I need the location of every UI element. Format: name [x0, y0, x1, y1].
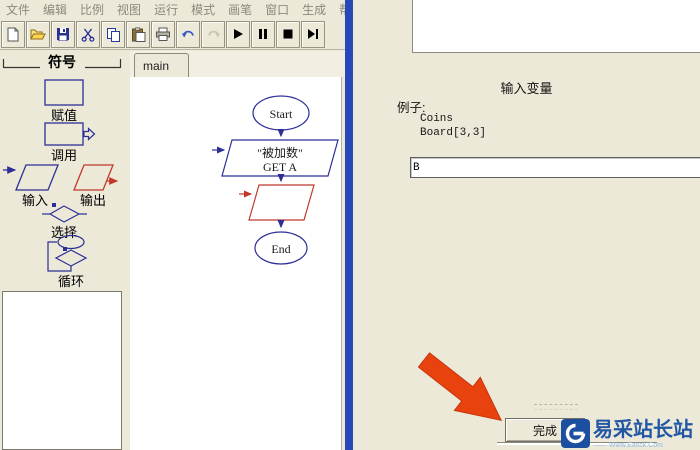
flow-input-line2: GET A [263, 160, 297, 174]
symbol-input[interactable]: 输入 [3, 165, 58, 208]
menu-mode[interactable]: 模式 [185, 0, 221, 19]
new-button[interactable] [1, 21, 25, 48]
dialog-example-board: Board[3,3] [420, 127, 486, 139]
open-button[interactable] [26, 21, 50, 48]
watch-list-panel[interactable] [2, 291, 122, 450]
copy-button[interactable] [101, 21, 125, 48]
undo-icon [181, 28, 196, 41]
symbol-assignment-label: 赋值 [51, 108, 77, 123]
symbol-selection[interactable]: 选择 [42, 203, 87, 240]
flowchart: Start "被加数" GET A End [130, 77, 342, 450]
dialog-example-coins: Coins [420, 113, 453, 125]
cut-button[interactable] [76, 21, 100, 48]
symbols-palette: 赋值 调用 输入 输出 选择 循环 [0, 75, 127, 291]
annotation-arrow-icon [410, 346, 525, 441]
watermark: 易采站长站 —— Www.Easck.Com [561, 419, 693, 449]
flow-node-new-io-selected[interactable] [239, 185, 314, 220]
flow-node-end[interactable]: End [255, 232, 307, 264]
menu-scale[interactable]: 比例 [74, 0, 110, 19]
redo-button[interactable] [201, 21, 225, 48]
watermark-subtext: —— Www.Easck.Com [593, 442, 693, 449]
menu-edit[interactable]: 编辑 [37, 0, 73, 19]
flow-start-label: Start [270, 107, 293, 121]
redo-icon-disabled [206, 28, 221, 41]
paste-clipboard-icon [131, 27, 146, 42]
symbols-panel-header: 符号 [0, 52, 127, 72]
watermark-text: 易采站长站 [593, 419, 693, 442]
symbol-loop-label: 循环 [58, 274, 84, 289]
pause-icon [258, 28, 268, 40]
symbol-call-label: 调用 [51, 148, 77, 163]
watermark-logo-icon [561, 419, 590, 448]
dashed-grip [534, 404, 578, 410]
dialog-upper-text-area [412, 0, 700, 53]
save-button[interactable] [51, 21, 75, 48]
flow-end-label: End [271, 242, 290, 256]
pause-button[interactable] [251, 21, 275, 48]
step-to-end-icon [307, 28, 319, 40]
symbol-input-label: 输入 [22, 193, 48, 208]
symbol-loop[interactable]: 循环 [48, 236, 86, 290]
new-document-icon [6, 27, 20, 42]
save-icon [56, 27, 70, 41]
toolbar [0, 19, 345, 50]
tab-main[interactable]: main [134, 53, 189, 77]
menu-file[interactable]: 文件 [0, 0, 36, 19]
symbol-output[interactable]: 输出 [74, 165, 117, 208]
symbol-selection-label: 选择 [51, 225, 77, 240]
stop-button[interactable] [276, 21, 300, 48]
symbol-output-label: 输出 [80, 193, 106, 208]
step-button[interactable] [301, 21, 325, 48]
menu-generate[interactable]: 生成 [296, 0, 332, 19]
play-icon [232, 28, 244, 40]
cut-scissors-icon [81, 27, 95, 42]
menu-window[interactable]: 窗口 [259, 0, 295, 19]
paste-button[interactable] [126, 21, 150, 48]
open-folder-icon [30, 27, 46, 41]
flow-input-line1: "被加数" [257, 145, 303, 160]
print-icon [155, 27, 171, 41]
flow-node-start[interactable]: Start [253, 96, 309, 130]
input-variable-dialog [353, 0, 700, 450]
symbols-panel-title: 符号 [47, 54, 76, 70]
copy-icon [106, 27, 121, 42]
tab-main-label: main [143, 59, 169, 73]
symbol-assignment[interactable]: 赋值 [45, 80, 83, 123]
undo-button[interactable] [176, 21, 200, 48]
menu-pen[interactable]: 画笔 [222, 0, 258, 19]
menu-view[interactable]: 视图 [111, 0, 147, 19]
symbol-call[interactable]: 调用 [45, 123, 95, 163]
dialog-title: 输入变量 [353, 78, 700, 97]
stop-icon [283, 29, 293, 39]
menu-bar: 文件 编辑 比例 视图 运行 模式 画笔 窗口 生成 帮助 [0, 0, 345, 19]
menu-run[interactable]: 运行 [148, 0, 184, 19]
play-button[interactable] [226, 21, 250, 48]
variable-name-input[interactable] [410, 157, 700, 178]
flow-node-input[interactable]: "被加数" GET A [212, 140, 338, 176]
print-button[interactable] [151, 21, 175, 48]
